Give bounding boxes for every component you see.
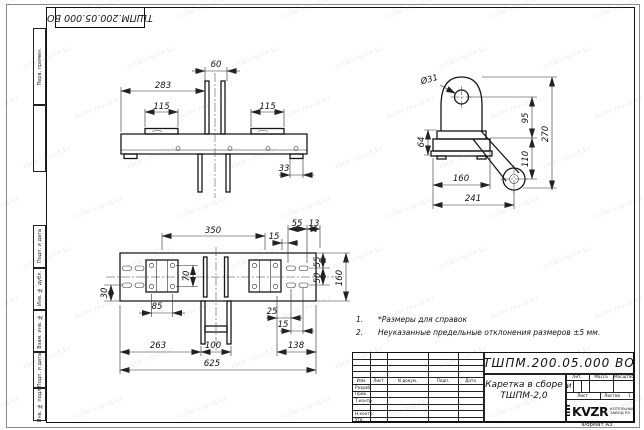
note-1: 1. *Размеры для справок — [352, 313, 628, 326]
note-number: 1. — [352, 313, 378, 326]
note-2: 2. Неуказанные предельные отклонения раз… — [352, 326, 628, 339]
front-view: 60 283 115 115 33 — [121, 60, 314, 198]
dim-625: 625 — [204, 359, 220, 369]
note-text: *Размеры для справок — [378, 313, 628, 326]
litera-value: И — [565, 380, 573, 392]
col-izm: Изм. — [353, 377, 370, 384]
dim-33: 33 — [279, 164, 290, 174]
company-cell: KVZR КОТЕЛЬНЫЙ ЗАВОД РЭ — [565, 399, 635, 423]
plan-view: 350 15 55 13 70 85 30 25 15 138 263 100 … — [100, 219, 350, 374]
dim-160-right: 160 — [335, 270, 345, 286]
company-name: КОТЕЛЬНЫЙ ЗАВОД РЭ — [610, 407, 635, 416]
dim-283: 283 — [155, 81, 171, 91]
dim-60: 60 — [211, 60, 222, 70]
coil-logo-icon — [565, 405, 570, 418]
dim-350: 350 — [205, 226, 221, 236]
dim-25: 25 — [267, 307, 278, 317]
dim-85: 85 — [152, 302, 163, 312]
dim-55-top: 55 — [292, 219, 303, 229]
dim-110: 110 — [521, 151, 531, 167]
sheets-total-value: 1 — [624, 392, 635, 399]
dim-70: 70 — [182, 271, 192, 282]
dim-263: 263 — [150, 341, 166, 351]
col-data: Дата — [458, 377, 483, 384]
dim-15-top: 15 — [269, 232, 280, 242]
dim-241: 241 — [465, 194, 481, 204]
company-logo-text: KVZR — [572, 404, 608, 419]
dim-64: 64 — [417, 137, 427, 148]
dim-13: 13 — [309, 219, 320, 229]
note-number: 2. — [352, 326, 378, 339]
dim-dia31: Ø31 — [418, 72, 439, 88]
dim-55-right: 55 — [313, 257, 323, 268]
doc-number: ТШПМ.200.05.000 ВО — [483, 353, 635, 373]
dim-115-right: 115 — [259, 102, 275, 112]
dim-138: 138 — [288, 341, 305, 351]
dim-115-left: 115 — [153, 102, 169, 112]
row-utv: Утв. — [353, 417, 389, 424]
dim-270: 270 — [541, 126, 551, 142]
col-list: Лист — [370, 377, 387, 384]
title-block: Изм. Лист N докум. Подп. Дата Разраб. Пр… — [352, 352, 634, 422]
format-label: Формат А3 — [560, 422, 634, 428]
side-view: Ø31 64 160 241 95 110 270 — [417, 72, 557, 209]
masshtab-header: Масштаб — [613, 373, 635, 380]
note-text: Неуказанные предельные отклонения размер… — [378, 326, 628, 339]
dim-160: 160 — [453, 174, 469, 184]
lit-header: Лит. — [565, 373, 589, 380]
product-name: Каретка в сборе ТШПМ-2,0 — [483, 373, 565, 430]
drawing-sheet: ТШПМ.200.05.000 ВО Перв. примен. Подп. и… — [0, 0, 644, 430]
row-t-kontr: Т.контр. — [353, 397, 389, 404]
sheet-label: Лист — [565, 392, 600, 399]
massa-header: Масса — [589, 373, 613, 380]
col-n-dokum: N докум. — [387, 377, 428, 384]
dim-100: 100 — [205, 341, 221, 351]
dim-15-bottom: 15 — [278, 320, 289, 330]
dim-30: 30 — [100, 288, 110, 299]
sheets-total-label: Листов — [600, 392, 624, 399]
dim-95: 95 — [521, 113, 531, 124]
dim-50-right: 50 — [313, 273, 323, 284]
notes: 1. *Размеры для справок 2. Неуказанные п… — [352, 313, 628, 339]
col-podp: Подп. — [428, 377, 458, 384]
